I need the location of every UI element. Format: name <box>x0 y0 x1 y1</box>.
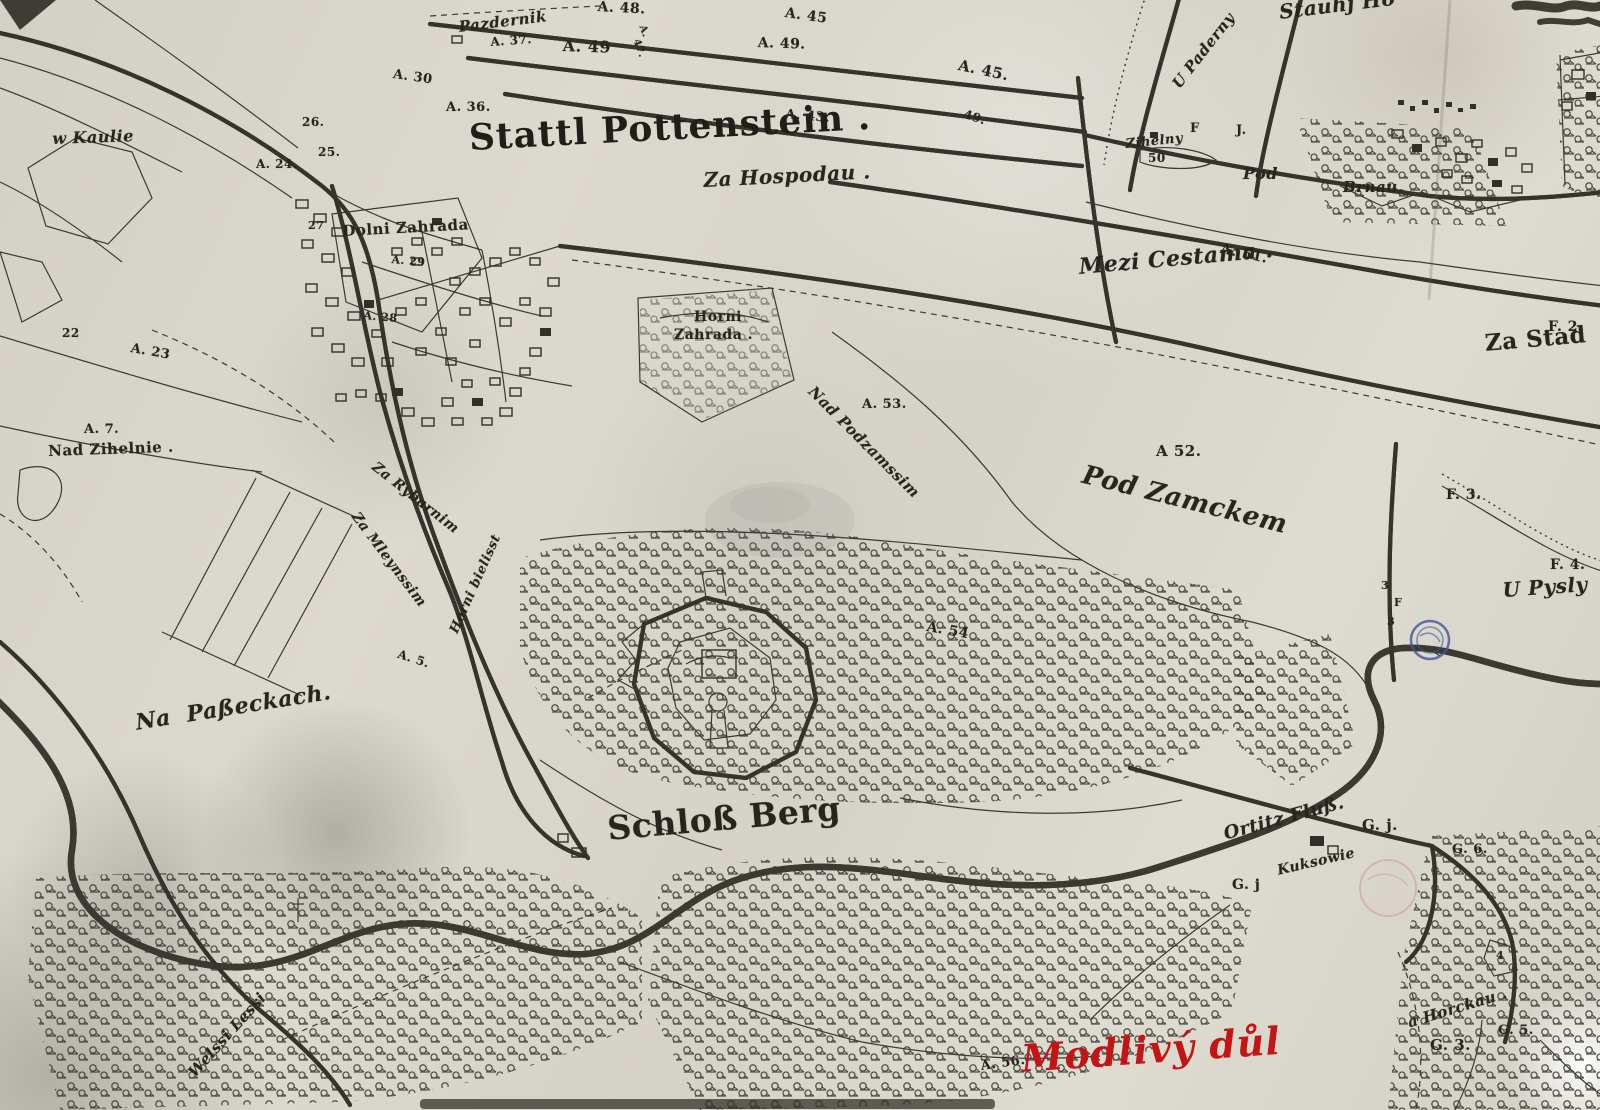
map-label: U Paderny <box>1170 10 1238 91</box>
map-label: Schloß Berg <box>606 792 842 845</box>
map-label: F. 3. <box>1446 488 1481 502</box>
map-label: A. 48. <box>597 0 646 16</box>
map-label: A. 43. <box>785 108 831 125</box>
map-label: A. 37. <box>490 33 532 48</box>
map-label: Pod Zamckem <box>1080 462 1290 538</box>
map-label: 47. <box>631 38 647 59</box>
map-label: Welssi Lessi <box>186 990 269 1080</box>
map-label: G. 3. <box>1430 1038 1471 1053</box>
map-label: Ortitz Fluß. <box>1222 794 1346 843</box>
map-label: A. 56. <box>980 1054 1026 1073</box>
map-label: Za Stad <box>1484 323 1587 355</box>
map-label: A. 49 <box>562 38 611 56</box>
map-label: A. 30 <box>392 68 433 86</box>
map-label: F <box>1190 122 1200 135</box>
map-label: G. j. <box>1362 818 1398 833</box>
map-label: A. 23 <box>130 342 171 362</box>
map-label: A. 54 <box>926 620 970 641</box>
map-label: 3 <box>1381 580 1389 591</box>
map-label: Horni <box>694 310 742 324</box>
map-label: F. 4. <box>1550 558 1585 572</box>
map-label: A 52. <box>1156 444 1201 459</box>
map-label: Zihelny <box>1125 132 1184 151</box>
map-label: Za Hospodau . <box>703 161 871 190</box>
map-label: 3 <box>1387 616 1395 627</box>
map-label: 50 <box>1148 152 1166 164</box>
map-label: Za Rybarnim <box>369 460 461 536</box>
map-label: 26. <box>302 116 324 128</box>
map-label: Zahrada . <box>674 328 753 342</box>
map-label: w Kaulie <box>52 128 134 147</box>
map-label: 49. <box>962 108 987 126</box>
map-label: A. 49. <box>758 36 806 52</box>
map-label: G. j <box>1232 878 1260 892</box>
sheet-edge-shadow <box>420 1099 995 1109</box>
map-label: A. 5. <box>396 648 431 670</box>
map-label: J. <box>1236 124 1247 137</box>
map-label: F <box>1394 597 1402 608</box>
map-label: A. 45 <box>784 6 828 26</box>
map-label: Horni bielisst <box>448 533 503 636</box>
map-label: Dolni Zahrada <box>342 217 469 239</box>
map-label: Za Mleynssim <box>349 510 429 610</box>
map-label: 22 <box>62 327 80 339</box>
map-label: a Horckau . <box>1406 986 1509 1030</box>
map-label: G. 6. <box>1452 843 1488 856</box>
map-label: A. 36. <box>446 101 491 114</box>
map-label: G. 5. <box>1498 1024 1534 1037</box>
map-label: 25. <box>318 146 340 158</box>
map-label: U Pysly <box>1502 574 1588 600</box>
map-label: 27 <box>308 220 324 231</box>
map-label: Na Paßeckach. <box>134 681 333 734</box>
map-label: A. 45. <box>957 58 1010 83</box>
map-label: 4 <box>1496 950 1504 961</box>
map-label: A. 53. <box>862 398 907 411</box>
map-label: Pod <box>1243 166 1278 182</box>
map-label: Stauhj Ho <box>1278 0 1396 22</box>
historical-map: Stattl Pottenstein . A. 48.PazdernikA. 3… <box>0 0 1600 1110</box>
map-labels-layer: A. 48.PazdernikA. 37.A. 49A.47.A. 49.A. … <box>0 0 1600 1110</box>
map-label: Nad Zihelnie . <box>48 440 174 459</box>
handwritten-annotation: Modlivý důl <box>1020 1022 1282 1078</box>
map-label: Kuksowie <box>1276 846 1356 877</box>
map-label: A. 28 <box>363 310 398 324</box>
map-label: A. 24. <box>256 158 298 170</box>
map-label: A. <box>637 24 651 39</box>
map-label: A. 29 <box>391 254 426 268</box>
map-label: A. 7. <box>84 423 119 436</box>
map-label: Brnau. <box>1343 180 1403 195</box>
map-label: Pazdernik <box>458 9 548 35</box>
